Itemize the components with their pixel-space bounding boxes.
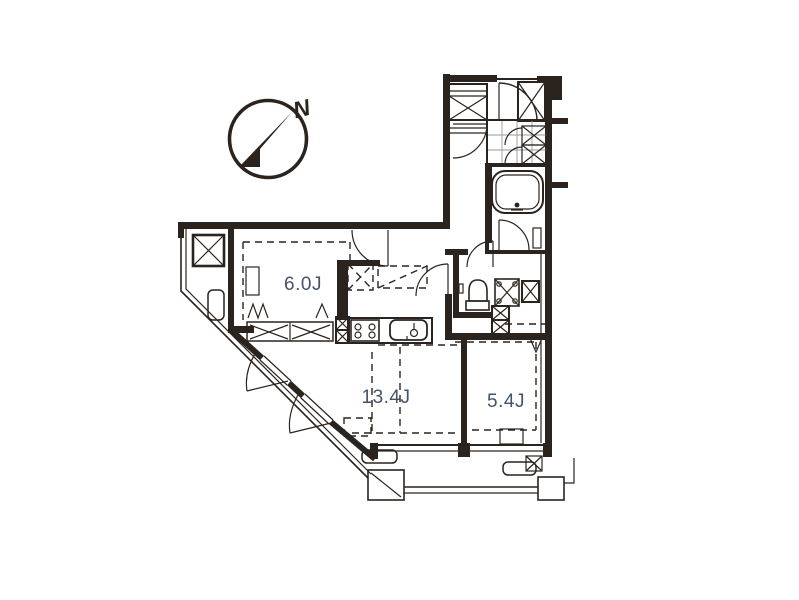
closet-door-swing-icon bbox=[505, 128, 522, 145]
meter-box-icon bbox=[449, 84, 487, 120]
bedroom-east-room bbox=[455, 336, 543, 430]
curtain-mark bbox=[316, 304, 328, 318]
paper-holder bbox=[459, 284, 463, 293]
north-arrow-icon bbox=[239, 112, 292, 167]
floor-plan: N bbox=[0, 0, 799, 600]
room-label-13-4j: 13.4J bbox=[362, 387, 411, 408]
bathroom-door-swing-icon bbox=[499, 220, 529, 250]
closet-dashed-x-box bbox=[348, 264, 373, 290]
compass-icon: N bbox=[230, 94, 314, 178]
north-label: N bbox=[290, 94, 313, 123]
shaft-door-swing-icon bbox=[453, 124, 487, 158]
bath-counter bbox=[533, 228, 541, 248]
hall-door-swing-icon bbox=[416, 264, 448, 296]
room-label-6-0j: 6.0J bbox=[284, 274, 322, 295]
balcony-pillar bbox=[538, 477, 564, 500]
desk-counter bbox=[246, 267, 259, 295]
kitchen bbox=[336, 264, 458, 345]
low-window bbox=[500, 429, 523, 444]
curtain-mark bbox=[248, 304, 268, 318]
floor-plan-page: N bbox=[0, 0, 799, 600]
toilet-room bbox=[459, 241, 545, 334]
linen-closet bbox=[505, 126, 546, 164]
closet-x-panels bbox=[247, 322, 333, 341]
toilet-icon bbox=[459, 280, 489, 310]
bathroom bbox=[487, 165, 548, 252]
balcony-ac-units bbox=[362, 450, 542, 475]
gas-stove-icon bbox=[351, 320, 379, 341]
diagonal-wall bbox=[231, 330, 375, 459]
room-label-5-4j: 5.4J bbox=[487, 391, 525, 412]
pipe-shaft-x-box-icon bbox=[492, 281, 539, 334]
air-conditioner-icon bbox=[503, 462, 536, 475]
washroom bbox=[487, 120, 548, 165]
upper-cabinet-dashed bbox=[378, 266, 427, 288]
kitchen-sink-icon bbox=[390, 320, 427, 340]
bathtub-icon bbox=[492, 171, 543, 213]
air-conditioner-icon bbox=[208, 290, 224, 320]
washing-machine-pan-icon bbox=[495, 279, 519, 306]
